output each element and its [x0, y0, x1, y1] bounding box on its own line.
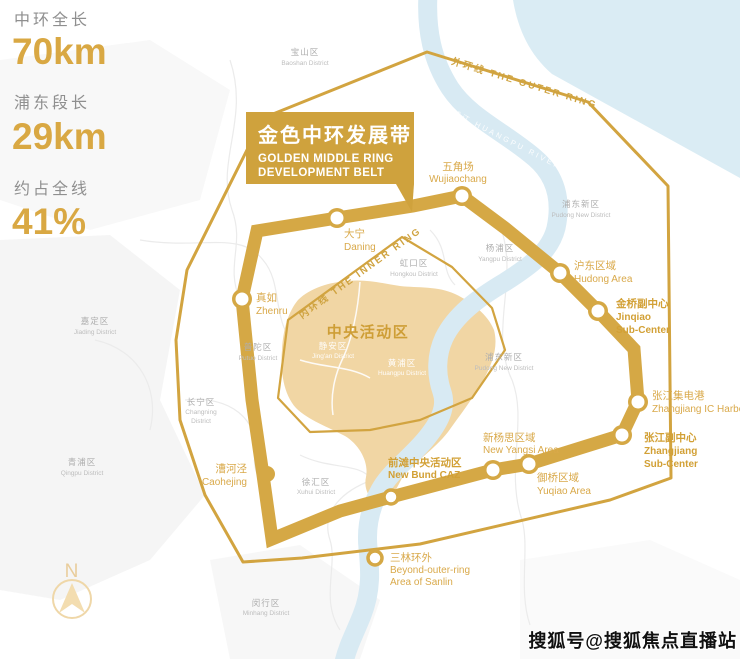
svg-text:Qingpu District: Qingpu District [61, 470, 104, 477]
node-daning [327, 208, 347, 228]
label-hudong: 沪东区域 [574, 259, 616, 272]
svg-text:Zhenru: Zhenru [256, 306, 288, 317]
svg-text:Changning: Changning [185, 409, 217, 416]
district-putuo: 普陀区 [244, 342, 273, 352]
district-huangpu: 黄浦区 [388, 358, 417, 368]
district-pudong-mid: 浦东新区 [485, 352, 523, 362]
label-caohejing: 漕河泾 [216, 462, 248, 475]
svg-text:Hudong Area: Hudong Area [574, 274, 633, 285]
svg-text:Wujiaochang: Wujiaochang [429, 174, 487, 185]
node-new-yangsi [483, 460, 503, 480]
label-jinqiao: 金桥副中心 [615, 297, 669, 310]
district-pudong-north: 浦东新区 [562, 199, 600, 209]
stat-value-pudong: 29km [12, 116, 107, 157]
banner-subtitle-1: GOLDEN MIDDLE RING [258, 153, 394, 165]
banner-subtitle-2: DEVELOPMENT BELT [258, 167, 384, 179]
label-zhenru: 真如 [256, 291, 277, 304]
svg-text:Zhangjiang: Zhangjiang [644, 446, 697, 457]
node-zhangjiang-ic [628, 392, 648, 412]
svg-text:Area of Sanlin: Area of Sanlin [390, 577, 453, 588]
svg-text:Jing'an District: Jing'an District [312, 353, 354, 360]
svg-text:Beyond-outer-ring: Beyond-outer-ring [390, 565, 470, 576]
title-banner: 金色中环发展带 GOLDEN MIDDLE RING DEVELOPMENT B… [246, 112, 414, 212]
stat-value-total: 70km [12, 31, 107, 72]
svg-text:Zhangjiang IC Harbor: Zhangjiang IC Harbor [652, 404, 740, 415]
district-baoshan: 宝山区 [291, 47, 320, 57]
svg-text:Yuqiao Area: Yuqiao Area [537, 486, 591, 497]
node-jinqiao [588, 301, 608, 321]
compass-n-label: N [65, 561, 80, 582]
banner-title: 金色中环发展带 [257, 123, 412, 147]
node-yuqiao [519, 454, 539, 474]
node-sanlin [368, 551, 382, 565]
svg-text:Sub-Center: Sub-Center [644, 459, 698, 470]
stat-label-total: 中环全长 [14, 11, 90, 29]
district-qingpu: 青浦区 [68, 457, 97, 467]
label-daning: 大宁 [344, 227, 365, 240]
label-new-bund: 前滩中央活动区 [388, 456, 462, 469]
svg-text:Huangpu District: Huangpu District [378, 370, 426, 377]
label-wujiaochang: 五角场 [442, 160, 474, 173]
svg-text:Pudong New District: Pudong New District [552, 212, 611, 219]
svg-text:Pudong New District: Pudong New District [475, 365, 534, 372]
district-jingan: 静安区 [319, 341, 348, 351]
stat-label-percent: 约占全线 [14, 180, 90, 198]
label-zhangjiang-sub: 张江副中心 [644, 431, 697, 444]
svg-text:Minhang District: Minhang District [243, 610, 290, 617]
svg-text:Jinqiao: Jinqiao [616, 312, 651, 323]
node-zhangjiang-sub [612, 425, 632, 445]
district-yangpu: 杨浦区 [486, 243, 515, 253]
label-new-yangsi: 新杨思区域 [483, 431, 536, 444]
svg-text:Caohejing: Caohejing [202, 477, 247, 488]
stat-value-percent: 41% [12, 201, 86, 242]
golden-middle-ring-infographic: 黄浦江 HUANGPU RIVER 外环线 THE OUTER RING 内环线… [0, 0, 740, 659]
svg-text:Hongkou District: Hongkou District [390, 271, 438, 278]
node-wujiaochang [452, 186, 472, 206]
district-jiading: 嘉定区 [81, 316, 110, 326]
svg-text:Baoshan District: Baoshan District [281, 60, 329, 67]
watermark: 搜狐号@搜狐焦点直播站 [528, 627, 737, 653]
district-xuhui: 徐汇区 [302, 477, 331, 487]
svg-text:Xuhui District: Xuhui District [297, 489, 335, 496]
shanghai-map: 黄浦江 HUANGPU RIVER 外环线 THE OUTER RING 内环线… [0, 0, 740, 659]
node-caohejing [259, 466, 275, 482]
label-zhangjiang-ic: 张江集电港 [652, 389, 705, 402]
node-zhenru [232, 289, 252, 309]
stat-label-pudong: 浦东段长 [14, 94, 90, 112]
district-changning: 长宁区 [187, 397, 216, 407]
svg-text:Daning: Daning [344, 242, 376, 253]
svg-text:Jiading District: Jiading District [74, 329, 116, 336]
node-new-bund [384, 490, 398, 504]
caz-label: 中央活动区 [327, 323, 410, 341]
district-minhang: 闵行区 [252, 598, 281, 608]
svg-text:Putuo District: Putuo District [239, 355, 278, 362]
svg-text:Sub-Center: Sub-Center [616, 325, 670, 336]
label-sanlin: 三林环外 [390, 551, 432, 564]
label-yuqiao: 御桥区域 [537, 471, 579, 484]
svg-text:Yangpu District: Yangpu District [478, 256, 522, 263]
district-hongkou: 虹口区 [400, 258, 429, 268]
svg-text:New Yangsi Area: New Yangsi Area [483, 445, 559, 456]
svg-text:New Bund CAZ: New Bund CAZ [388, 470, 460, 481]
svg-text:District: District [191, 418, 211, 425]
node-hudong [550, 263, 570, 283]
